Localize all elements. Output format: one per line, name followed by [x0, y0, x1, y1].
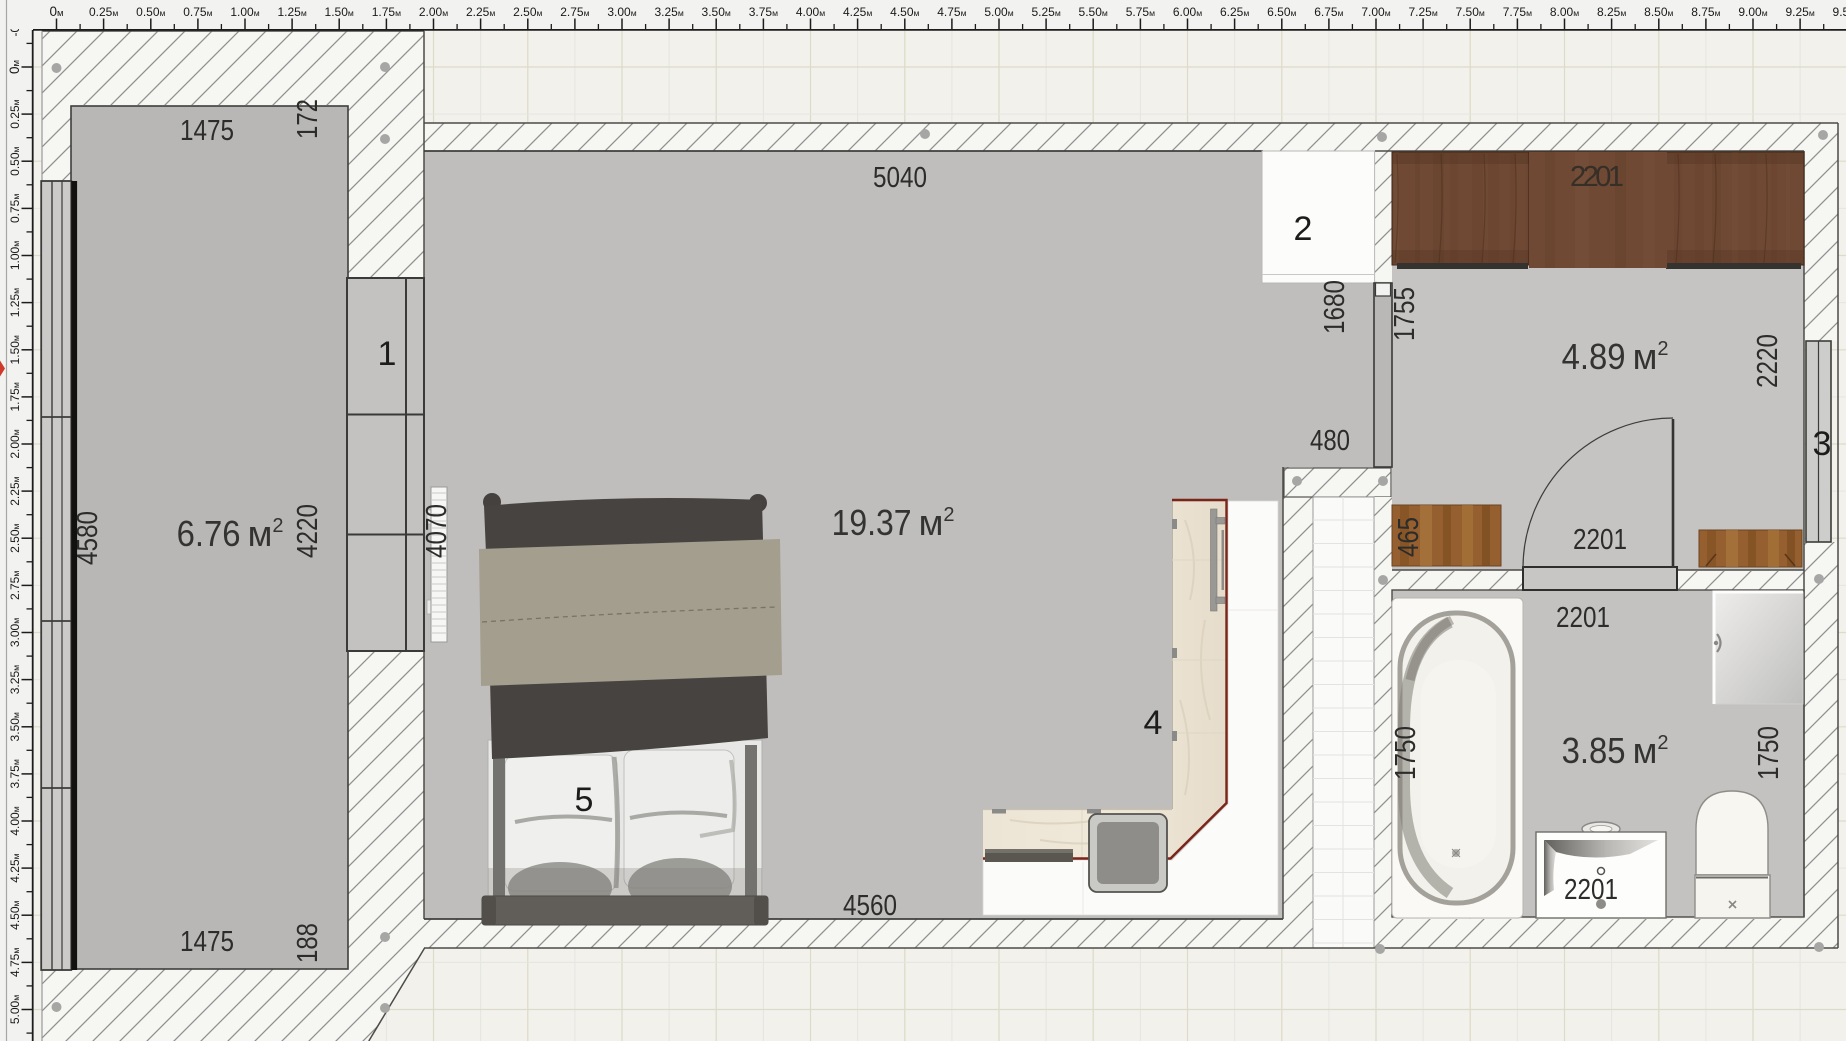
svg-text:1.50м: 1.50м [325, 5, 354, 19]
svg-text:4.25м: 4.25м [8, 853, 22, 882]
svg-text:3.25м: 3.25м [654, 5, 683, 19]
svg-text:2201: 2201 [1573, 524, 1627, 556]
svg-text:5.00м: 5.00м [8, 995, 22, 1024]
svg-text:3.00м: 3.00м [607, 5, 636, 19]
svg-text:3.85м2: 3.85м2 [1562, 730, 1669, 771]
svg-text:4.75м: 4.75м [8, 948, 22, 977]
svg-text:2.00м: 2.00м [8, 429, 22, 458]
svg-text:6.50м: 6.50м [1267, 5, 1296, 19]
svg-text:5040: 5040 [873, 162, 927, 194]
svg-text:1475: 1475 [180, 115, 234, 147]
svg-text:2201: 2201 [1556, 602, 1610, 634]
svg-text:5: 5 [575, 781, 594, 819]
svg-text:5.25м: 5.25м [1031, 5, 1060, 19]
svg-text:4: 4 [1144, 704, 1163, 742]
svg-text:5.75м: 5.75м [1126, 5, 1155, 19]
svg-text:4220: 4220 [292, 504, 324, 558]
svg-text:3: 3 [1813, 425, 1832, 463]
svg-text:1.75м: 1.75м [8, 382, 22, 411]
svg-text:9.25м: 9.25м [1785, 5, 1814, 19]
svg-text:1755: 1755 [1389, 287, 1421, 341]
svg-text:9.00м: 9.00м [1738, 5, 1767, 19]
svg-text:3.75м: 3.75м [8, 759, 22, 788]
svg-text:0.50м: 0.50м [8, 146, 22, 175]
svg-text:6.75м: 6.75м [1314, 5, 1343, 19]
svg-text:1750: 1750 [1390, 726, 1422, 780]
svg-text:1750: 1750 [1753, 726, 1785, 780]
svg-text:6.00м: 6.00м [1173, 5, 1202, 19]
svg-text:3.50м: 3.50м [702, 5, 731, 19]
svg-text:1.00м: 1.00м [8, 241, 22, 270]
svg-text:1.25м: 1.25м [277, 5, 306, 19]
svg-text:8.00м: 8.00м [1550, 5, 1579, 19]
svg-text:4.00м: 4.00м [8, 806, 22, 835]
svg-text:188: 188 [292, 923, 324, 963]
svg-text:6.76м2: 6.76м2 [177, 513, 284, 554]
svg-text:480: 480 [1310, 425, 1350, 457]
svg-text:2.25м: 2.25м [8, 476, 22, 505]
svg-text:4.25м: 4.25м [843, 5, 872, 19]
svg-text:6.25м: 6.25м [1220, 5, 1249, 19]
svg-text:2220: 2220 [1752, 334, 1784, 388]
svg-text:1680: 1680 [1319, 280, 1351, 334]
svg-text:0.25м: 0.25м [8, 99, 22, 128]
svg-text:3.75м: 3.75м [749, 5, 778, 19]
svg-text:9.50м: 9.50м [1833, 5, 1846, 19]
svg-text:2.50м: 2.50м [513, 5, 542, 19]
svg-text:0.75м: 0.75м [183, 5, 212, 19]
svg-text:4.00м: 4.00м [796, 5, 825, 19]
svg-text:7.00м: 7.00м [1361, 5, 1390, 19]
svg-text:1.50м: 1.50м [8, 335, 22, 364]
svg-text:7.50м: 7.50м [1456, 5, 1485, 19]
svg-text:8.50м: 8.50м [1644, 5, 1673, 19]
svg-text:2.50м: 2.50м [8, 523, 22, 552]
svg-text:4.75м: 4.75м [937, 5, 966, 19]
svg-text:1: 1 [378, 335, 397, 373]
svg-text:1.75м: 1.75м [372, 5, 401, 19]
svg-text:8.25м: 8.25м [1597, 5, 1626, 19]
svg-text:2201: 2201 [1570, 161, 1624, 193]
svg-text:4560: 4560 [843, 890, 897, 922]
svg-text:4070: 4070 [421, 504, 453, 558]
svg-text:5.00м: 5.00м [984, 5, 1013, 19]
svg-text:0.75м: 0.75м [8, 194, 22, 223]
svg-text:172: 172 [292, 99, 324, 139]
svg-text:7.75м: 7.75м [1503, 5, 1532, 19]
svg-text:8.75м: 8.75м [1691, 5, 1720, 19]
svg-text:5.50м: 5.50м [1079, 5, 1108, 19]
svg-text:2.75м: 2.75м [560, 5, 589, 19]
svg-text:3.25м: 3.25м [8, 665, 22, 694]
svg-text:1475: 1475 [180, 926, 234, 958]
svg-text:0.25м: 0.25м [89, 5, 118, 19]
svg-text:2: 2 [1294, 210, 1313, 248]
svg-text:4.50м: 4.50м [890, 5, 919, 19]
svg-text:1.00м: 1.00м [230, 5, 259, 19]
svg-text:0.50м: 0.50м [136, 5, 165, 19]
svg-text:19.37м2: 19.37м2 [832, 502, 955, 543]
svg-text:3.00м: 3.00м [8, 618, 22, 647]
svg-text:4.50м: 4.50м [8, 900, 22, 929]
svg-text:1.25м: 1.25м [8, 288, 22, 317]
svg-text:2.25м: 2.25м [466, 5, 495, 19]
svg-text:465: 465 [1393, 517, 1425, 557]
svg-text:7.25м: 7.25м [1408, 5, 1437, 19]
svg-text:4.89м2: 4.89м2 [1562, 336, 1669, 377]
svg-text:2201: 2201 [1564, 874, 1618, 906]
svg-text:2.75м: 2.75м [8, 571, 22, 600]
svg-text:3.50м: 3.50м [8, 712, 22, 741]
svg-text:4580: 4580 [72, 511, 104, 565]
svg-text:2.00м: 2.00м [419, 5, 448, 19]
